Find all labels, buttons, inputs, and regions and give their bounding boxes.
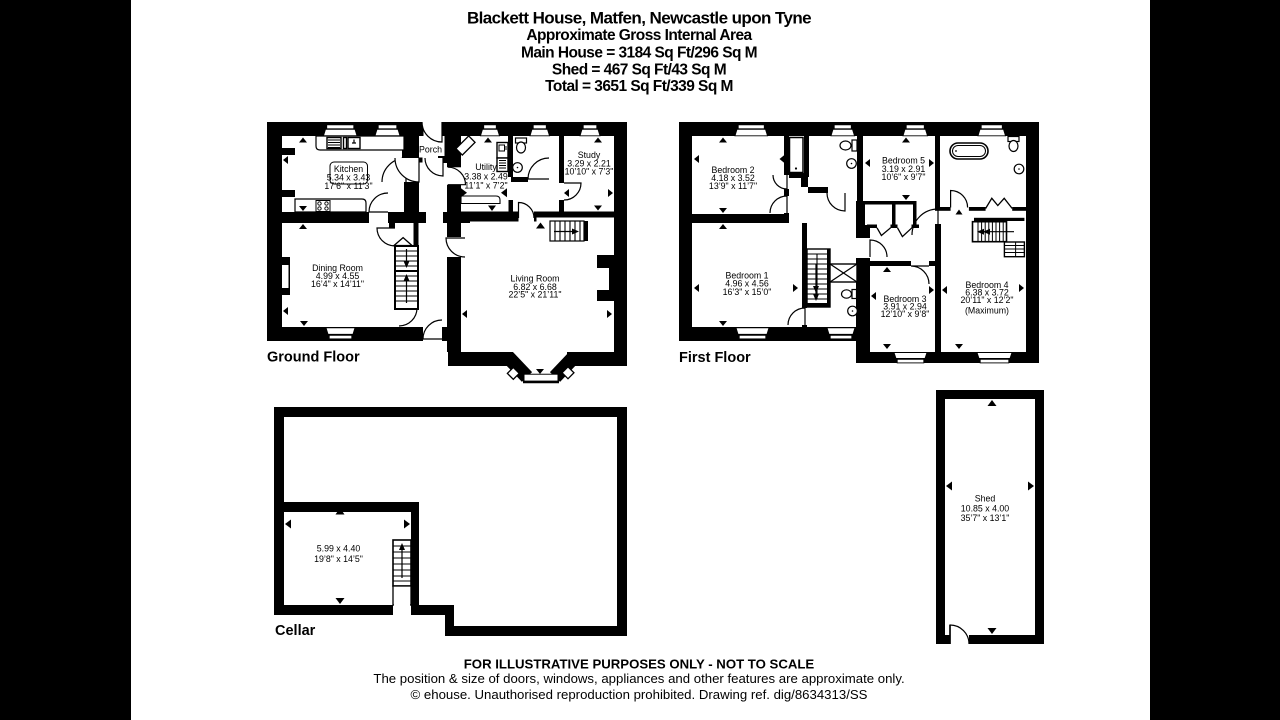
svg-text:© ehouse. Unauthorised reprodu: © ehouse. Unauthorised reproduction proh… bbox=[411, 687, 868, 702]
svg-text:10’10" x 7’3": 10’10" x 7’3" bbox=[565, 166, 614, 176]
svg-text:16’4" x 14’11": 16’4" x 14’11" bbox=[311, 279, 364, 289]
svg-text:Total = 3651 Sq Ft/339 Sq M: Total = 3651 Sq Ft/339 Sq M bbox=[545, 78, 733, 95]
svg-text:Main House = 3184 Sq Ft/296 Sq: Main House = 3184 Sq Ft/296 Sq M bbox=[521, 44, 757, 61]
svg-text:19’8" x 14’5": 19’8" x 14’5" bbox=[314, 554, 363, 564]
svg-text:Utility: Utility bbox=[475, 162, 497, 172]
svg-text:13’9" x 11’7": 13’9" x 11’7" bbox=[709, 181, 757, 191]
svg-text:Shed = 467 Sq Ft/43 Sq M: Shed = 467 Sq Ft/43 Sq M bbox=[552, 61, 726, 78]
svg-text:The position & size of doors,: The position & size of doors, windows, a… bbox=[373, 671, 904, 686]
svg-text:Cellar: Cellar bbox=[275, 623, 316, 639]
svg-text:22’5" x 21’11": 22’5" x 21’11" bbox=[508, 290, 561, 300]
svg-text:Ground Floor: Ground Floor bbox=[267, 349, 360, 365]
svg-text:35’7" x 13’1": 35’7" x 13’1" bbox=[961, 513, 1010, 523]
svg-text:First Floor: First Floor bbox=[679, 350, 751, 366]
svg-text:16’3" x 15’0": 16’3" x 15’0" bbox=[723, 287, 772, 297]
svg-text:Blackett House, Matfen, Newcas: Blackett House, Matfen, Newcastle upon T… bbox=[467, 8, 811, 27]
svg-text:Shed: Shed bbox=[975, 494, 996, 504]
svg-text:17’6" x 11’3": 17’6" x 11’3" bbox=[324, 181, 372, 191]
svg-text:12’10" x 9’8": 12’10" x 9’8" bbox=[881, 309, 930, 319]
svg-text:Porch: Porch bbox=[419, 145, 442, 155]
svg-text:(Maximum): (Maximum) bbox=[965, 305, 1009, 315]
svg-text:5.99 x 4.40: 5.99 x 4.40 bbox=[317, 544, 361, 554]
svg-text:Approximate Gross Internal Are: Approximate Gross Internal Area bbox=[526, 27, 752, 44]
svg-text:20’11" x 12’2": 20’11" x 12’2" bbox=[960, 295, 1013, 305]
svg-text:11’1" x 7’2": 11’1" x 7’2" bbox=[464, 181, 507, 191]
svg-text:10’6" x 9’7": 10’6" x 9’7" bbox=[882, 172, 926, 182]
svg-text:10.85 x 4.00: 10.85 x 4.00 bbox=[961, 504, 1010, 514]
svg-text:FOR ILLUSTRATIVE PURPOSES ONLY: FOR ILLUSTRATIVE PURPOSES ONLY - NOT TO … bbox=[464, 657, 815, 672]
